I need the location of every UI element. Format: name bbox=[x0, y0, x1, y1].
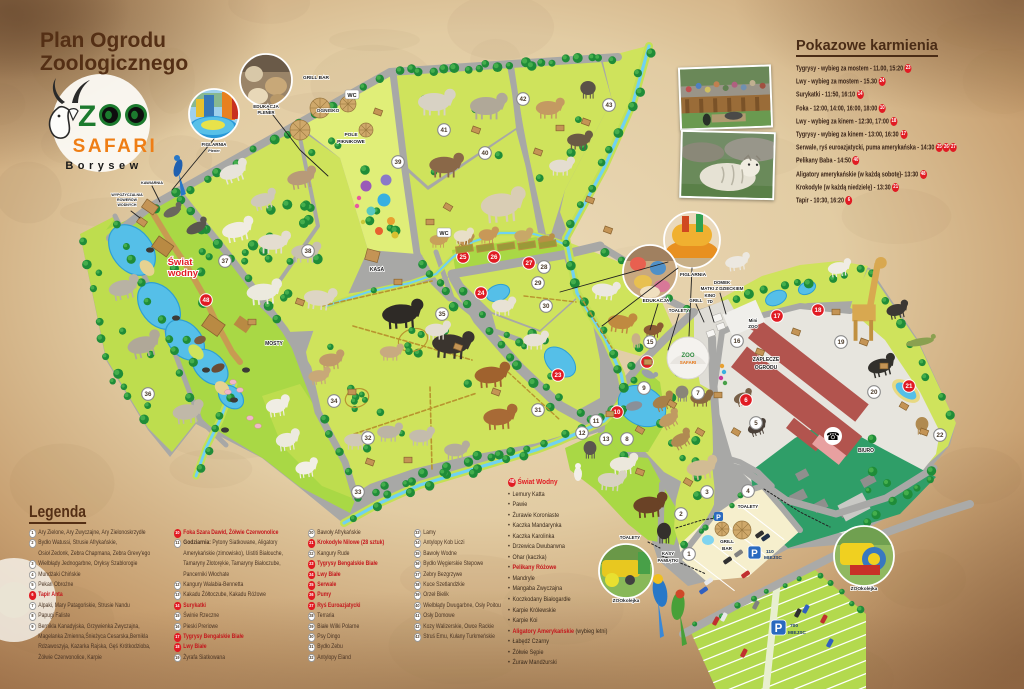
svg-text:ZOO: ZOO bbox=[748, 324, 758, 329]
svg-text:MOSTY: MOSTY bbox=[265, 341, 283, 347]
svg-text:Mini: Mini bbox=[749, 318, 758, 323]
svg-text:28: 28 bbox=[541, 264, 548, 271]
svg-text:P: P bbox=[716, 515, 721, 522]
svg-text:41: 41 bbox=[441, 127, 448, 134]
svg-text:34: 34 bbox=[331, 398, 338, 405]
svg-text:WYPOŻYCZALNIA: WYPOŻYCZALNIA bbox=[111, 193, 143, 197]
svg-text:6: 6 bbox=[744, 397, 748, 404]
svg-text:POLE: POLE bbox=[344, 132, 358, 138]
svg-text:TOALETY: TOALETY bbox=[620, 535, 640, 540]
svg-text:TOALETY: TOALETY bbox=[738, 504, 758, 509]
svg-text:21: 21 bbox=[906, 383, 913, 390]
svg-text:MATKI Z DZIECKIEM: MATKI Z DZIECKIEM bbox=[701, 286, 744, 291]
svg-text:SAFARI: SAFARI bbox=[73, 136, 154, 157]
svg-text:FIGLARNIA: FIGLARNIA bbox=[680, 272, 707, 278]
svg-text:1: 1 bbox=[687, 551, 691, 558]
svg-text:20: 20 bbox=[871, 389, 878, 396]
svg-text:KASY: KASY bbox=[662, 551, 674, 556]
svg-text:EDUKACJA: EDUKACJA bbox=[643, 298, 670, 304]
svg-text:110: 110 bbox=[766, 549, 774, 555]
svg-text:31: 31 bbox=[535, 407, 542, 414]
svg-text:27: 27 bbox=[526, 260, 533, 267]
svg-text:19: 19 bbox=[838, 339, 845, 346]
svg-text:5: 5 bbox=[754, 420, 758, 427]
svg-text:7D: 7D bbox=[707, 299, 713, 304]
svg-text:ROWERÓW: ROWERÓW bbox=[117, 197, 138, 202]
svg-text:GRILL: GRILL bbox=[720, 539, 734, 544]
svg-text:37: 37 bbox=[222, 258, 229, 265]
svg-text:9: 9 bbox=[642, 385, 646, 392]
svg-text:KINO: KINO bbox=[705, 293, 717, 298]
svg-text:BAR: BAR bbox=[722, 546, 733, 551]
svg-text:ZAPLECZE: ZAPLECZE bbox=[753, 357, 780, 363]
svg-text:P: P bbox=[751, 549, 758, 560]
svg-text:P: P bbox=[775, 623, 783, 635]
svg-text:35: 35 bbox=[439, 311, 446, 318]
svg-text:Z: Z bbox=[78, 100, 96, 133]
svg-text:WODNYCH: WODNYCH bbox=[118, 203, 137, 207]
svg-text:32: 32 bbox=[365, 435, 372, 442]
svg-text:33: 33 bbox=[355, 489, 362, 496]
svg-text:30: 30 bbox=[543, 303, 550, 310]
svg-text:ZOOkolejka: ZOOkolejka bbox=[613, 598, 640, 604]
svg-text:GRILL: GRILL bbox=[689, 298, 702, 303]
svg-text:TOALETY: TOALETY bbox=[669, 308, 689, 313]
svg-text:EDUKACJA: EDUKACJA bbox=[253, 104, 279, 109]
svg-text:2: 2 bbox=[679, 511, 683, 518]
svg-text:42: 42 bbox=[520, 96, 527, 103]
svg-text:WC: WC bbox=[347, 93, 356, 99]
svg-text:Plener: Plener bbox=[208, 149, 220, 153]
svg-text:12: 12 bbox=[579, 430, 586, 437]
svg-text:FIGLARNIA: FIGLARNIA bbox=[201, 142, 227, 147]
svg-text:24: 24 bbox=[478, 290, 485, 297]
svg-text:KASA: KASA bbox=[370, 267, 385, 273]
svg-text:GRILL BAR: GRILL BAR bbox=[303, 75, 330, 81]
svg-text:Świat: Świat bbox=[168, 256, 194, 268]
svg-text:25: 25 bbox=[460, 254, 467, 261]
svg-text:36: 36 bbox=[145, 391, 152, 398]
svg-text:29: 29 bbox=[535, 280, 542, 287]
svg-text:22: 22 bbox=[937, 432, 944, 439]
svg-text:38: 38 bbox=[305, 248, 312, 255]
svg-text:BIURO: BIURO bbox=[858, 448, 874, 454]
svg-text:MIEJSC: MIEJSC bbox=[788, 630, 806, 636]
svg-text:SAFARI: SAFARI bbox=[680, 360, 697, 365]
svg-text:17: 17 bbox=[774, 313, 781, 320]
svg-text:16: 16 bbox=[734, 338, 741, 345]
svg-text:ZOOkolejka: ZOOkolejka bbox=[851, 586, 878, 592]
svg-text:23: 23 bbox=[555, 372, 562, 379]
svg-text:18: 18 bbox=[815, 307, 822, 314]
svg-text:wodny: wodny bbox=[167, 268, 199, 279]
svg-text:DOMEK: DOMEK bbox=[714, 280, 731, 285]
svg-text:26: 26 bbox=[491, 254, 498, 261]
svg-text:ZOO: ZOO bbox=[682, 353, 695, 359]
svg-text:40: 40 bbox=[482, 150, 489, 157]
svg-text:15: 15 bbox=[647, 339, 654, 346]
svg-text:48: 48 bbox=[203, 297, 210, 304]
svg-text:7: 7 bbox=[696, 390, 700, 397]
svg-text:43: 43 bbox=[606, 102, 613, 109]
svg-text:OGRODU: OGRODU bbox=[755, 365, 778, 371]
svg-text:PAMIĄTKI: PAMIĄTKI bbox=[658, 558, 679, 563]
svg-text:8: 8 bbox=[625, 436, 629, 443]
svg-text:39: 39 bbox=[395, 159, 402, 166]
svg-text:3: 3 bbox=[705, 489, 709, 496]
svg-text:700: 700 bbox=[790, 623, 798, 629]
svg-text:10: 10 bbox=[614, 409, 621, 416]
svg-text:4: 4 bbox=[746, 488, 750, 495]
svg-text:WC: WC bbox=[439, 231, 448, 237]
svg-text:☎: ☎ bbox=[826, 431, 840, 443]
svg-text:MIEJSC: MIEJSC bbox=[764, 555, 782, 561]
svg-text:PLENER: PLENER bbox=[258, 110, 275, 115]
svg-text:PIKNIKOWE: PIKNIKOWE bbox=[337, 139, 366, 145]
svg-text:11: 11 bbox=[593, 418, 600, 425]
svg-text:OGNISKO: OGNISKO bbox=[317, 108, 340, 114]
svg-text:13: 13 bbox=[603, 436, 610, 443]
svg-text:KAWIARNIA: KAWIARNIA bbox=[141, 181, 163, 185]
